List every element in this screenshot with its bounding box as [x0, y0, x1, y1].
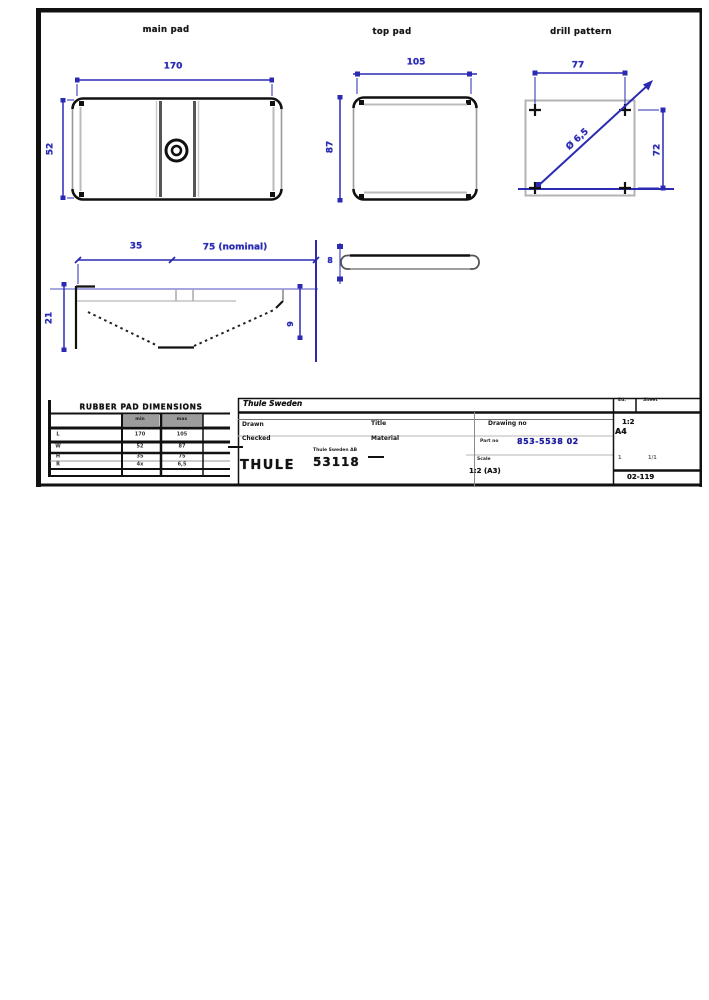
dim-view4-left: 21: [46, 312, 55, 325]
table-cell: 75: [179, 455, 186, 460]
sheet-left-value: 1: [618, 456, 621, 461]
table-cell: 6,5: [178, 463, 187, 468]
sheet-label: Sheet: [643, 399, 658, 404]
table-row: H: [56, 455, 60, 460]
parts-table-subcol-max: max: [177, 418, 188, 423]
table-cell: 170: [135, 433, 145, 438]
table-cell: 4x: [137, 463, 144, 468]
title-label: Title: [371, 421, 386, 427]
view-main-pad: [61, 78, 282, 201]
dim-view1-height: 52: [47, 143, 56, 156]
material-label: Material: [371, 436, 399, 442]
dim-view3-height: 72: [654, 144, 663, 157]
parts-table-subcol-min: min: [135, 418, 144, 423]
view-edge: [337, 243, 479, 284]
view3-title: drill pattern: [550, 28, 612, 37]
company-code: 53118: [313, 456, 360, 468]
parts-table-rules: [50, 400, 244, 477]
parts-table-header: RUBBER PAD DIMENSIONS: [80, 403, 203, 411]
dim-view2-height: 87: [327, 141, 336, 154]
dim-view3-width: 77: [572, 62, 585, 71]
scale-label: Scale: [477, 458, 491, 463]
titleblock-header: Thule Sweden: [243, 400, 302, 408]
drawn-label: Drawn: [242, 422, 264, 428]
dim-view5-thickness: 8: [327, 257, 333, 265]
view2-title: top pad: [373, 28, 412, 37]
drawing-no-label: Drawing no: [488, 421, 527, 427]
dim-view1-width: 170: [164, 63, 183, 72]
ratio-value: 1:2: [622, 419, 635, 426]
ed-label: Ed.: [618, 399, 626, 404]
part-no-label: Part no: [480, 440, 498, 445]
revision-value: 02-119: [627, 474, 654, 481]
scale-value: 1:2 (A3): [469, 468, 501, 475]
drawing-linework: [0, 0, 709, 500]
dim-view4-b: 75 (nominal): [203, 244, 268, 253]
drawing-number: 853-5538 02: [517, 438, 579, 446]
dim-view4-right: 9: [287, 321, 295, 327]
sheet-right-value: 1/1: [648, 456, 657, 461]
table-cell: 35: [137, 455, 144, 460]
table-row: R: [56, 463, 60, 468]
table-cell: 105: [177, 433, 187, 438]
thule-logo: THULE: [240, 459, 295, 472]
view-drill-pattern: [518, 71, 674, 196]
table-cell: 52: [137, 445, 144, 450]
dim-view4-a: 35: [130, 243, 143, 252]
view1-title: main pad: [143, 26, 190, 35]
table-row: W: [55, 445, 61, 450]
engineering-drawing-sheet: main pad top pad drill pattern 170 52 10…: [0, 0, 709, 1000]
company-subline: Thule Sweden AB: [313, 449, 357, 454]
format-value: A4: [615, 428, 627, 436]
dim-view2-width: 105: [407, 59, 426, 68]
view-side-profile: [50, 240, 319, 362]
table-cell: 87: [179, 445, 186, 450]
checked-label: Checked: [242, 436, 271, 442]
view-top-pad: [338, 72, 478, 203]
table-row: L: [56, 433, 59, 438]
